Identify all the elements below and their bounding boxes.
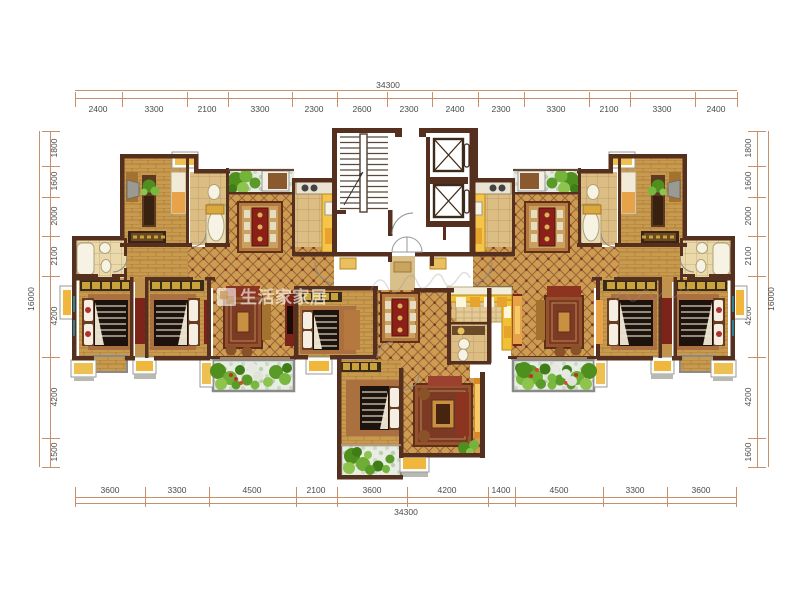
svg-text:3300: 3300 (653, 104, 672, 114)
svg-text:2400: 2400 (446, 104, 465, 114)
svg-text:1400: 1400 (492, 485, 511, 495)
svg-text:3600: 3600 (101, 485, 120, 495)
svg-text:2300: 2300 (305, 104, 324, 114)
svg-text:2100: 2100 (743, 246, 753, 265)
svg-text:4200: 4200 (438, 485, 457, 495)
svg-text:1600: 1600 (49, 171, 59, 190)
svg-text:1500: 1500 (49, 442, 59, 461)
svg-text:生活家家居: 生活家家居 (240, 287, 328, 307)
svg-text:3300: 3300 (168, 485, 187, 495)
svg-text:2400: 2400 (707, 104, 726, 114)
svg-text:4500: 4500 (243, 485, 262, 495)
svg-text:1800: 1800 (49, 138, 59, 157)
svg-text:1600: 1600 (743, 442, 753, 461)
svg-text:2100: 2100 (198, 104, 217, 114)
svg-text:2000: 2000 (743, 206, 753, 225)
svg-text:2100: 2100 (307, 485, 326, 495)
svg-text:2600: 2600 (353, 104, 372, 114)
svg-text:34300: 34300 (394, 507, 418, 517)
svg-text:3600: 3600 (363, 485, 382, 495)
svg-text:1600: 1600 (743, 171, 753, 190)
svg-text:2100: 2100 (49, 246, 59, 265)
svg-text:4200: 4200 (743, 387, 753, 406)
svg-text:1800: 1800 (743, 138, 753, 157)
svg-text:3300: 3300 (626, 485, 645, 495)
svg-text:2300: 2300 (492, 104, 511, 114)
svg-text:34300: 34300 (376, 80, 400, 90)
svg-text:4200: 4200 (49, 306, 59, 325)
svg-text:16000: 16000 (766, 287, 776, 311)
svg-text:4200: 4200 (49, 387, 59, 406)
svg-text:2000: 2000 (49, 206, 59, 225)
svg-text:2400: 2400 (89, 104, 108, 114)
svg-text:16000: 16000 (26, 287, 36, 311)
svg-text:2300: 2300 (400, 104, 419, 114)
svg-text:4500: 4500 (550, 485, 569, 495)
svg-text:3300: 3300 (547, 104, 566, 114)
svg-text:3300: 3300 (145, 104, 164, 114)
svg-text:3600: 3600 (692, 485, 711, 495)
svg-text:3300: 3300 (251, 104, 270, 114)
svg-text:2100: 2100 (600, 104, 619, 114)
